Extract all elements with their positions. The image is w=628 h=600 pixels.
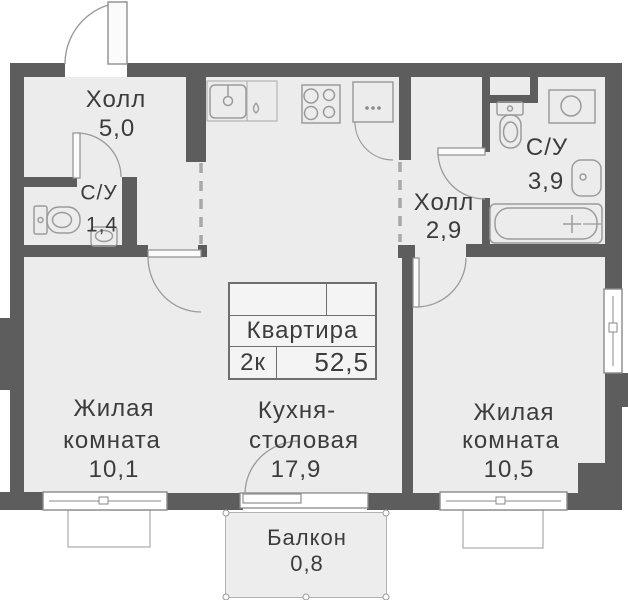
floor-plan: Квартира 2к 52,5 Холл 5,0 С/У 1,4 С/У 3,… bbox=[0, 0, 628, 600]
room-area-living-left: 10,1 bbox=[89, 458, 140, 482]
wall-left bbox=[10, 63, 24, 510]
wall-bottom-3 bbox=[367, 493, 440, 510]
room-area-living-right: 10,5 bbox=[484, 458, 535, 482]
wall-right-pilaster bbox=[605, 373, 628, 407]
wall-kitchen-right-lower bbox=[402, 245, 413, 493]
window-bottom-right bbox=[440, 492, 567, 510]
wall-wc-large-left-upper bbox=[482, 77, 490, 152]
room-area-kitchen: 17,9 bbox=[271, 458, 322, 482]
window-sill-left bbox=[68, 510, 150, 547]
room-label-kitchen-2: столовая bbox=[249, 429, 359, 453]
room-label-hall-top: Холл bbox=[86, 88, 147, 112]
room-label-living-right-2: комната bbox=[462, 429, 560, 453]
wall-wc-large-shaft-h bbox=[482, 95, 537, 103]
window-bottom-left bbox=[43, 492, 167, 510]
info-box-empty-row bbox=[230, 284, 375, 316]
room-area-balcony: 0,8 bbox=[290, 553, 324, 575]
room-label-living-left-2: комната bbox=[63, 429, 161, 453]
room-label-wc-large: С/У bbox=[526, 136, 568, 160]
apartment-info-box: Квартира 2к 52,5 bbox=[228, 282, 377, 380]
window-right-wall bbox=[604, 289, 622, 373]
entrance-door-leaf bbox=[108, 2, 127, 64]
wall-bottom-1 bbox=[10, 493, 43, 510]
room-label-kitchen-1: Кухня- bbox=[258, 399, 336, 423]
room-area-wc-small: 1,4 bbox=[86, 215, 118, 236]
room-label-wc-small: С/У bbox=[80, 183, 117, 204]
wall-wc-large-left-lower bbox=[482, 198, 490, 245]
room-area-hall-top: 5,0 bbox=[99, 117, 135, 141]
wall-wc-large-shaft-v bbox=[530, 77, 538, 103]
wall-hall-kitchen-divider bbox=[186, 77, 206, 162]
room-area-hall-right: 2,9 bbox=[426, 219, 462, 243]
info-box-values-row: 2к 52,5 bbox=[230, 347, 375, 378]
room-label-living-right-1: Жилая bbox=[474, 401, 555, 425]
room-label-living-left-1: Жилая bbox=[74, 397, 155, 421]
info-box-empty-cell-left bbox=[230, 284, 327, 315]
wall-hall-right-stub bbox=[398, 245, 415, 258]
room-label-hall-right: Холл bbox=[414, 191, 475, 215]
wall-wc-large-bottom bbox=[466, 244, 605, 257]
apartment-title: Квартира bbox=[230, 316, 375, 347]
info-box-title-row: Квартира bbox=[230, 316, 375, 348]
wall-hall-bottom bbox=[24, 245, 148, 257]
room-area-wc-large: 3,9 bbox=[528, 170, 564, 194]
window-sill-right bbox=[463, 510, 543, 548]
wall-wc-small-top bbox=[24, 177, 77, 187]
info-box-empty-cell-right bbox=[327, 284, 375, 315]
wall-bottom-2 bbox=[167, 493, 243, 510]
room-label-balcony: Балкон bbox=[267, 527, 347, 549]
wall-hall-bottom-stub bbox=[198, 245, 207, 257]
balcony-glazing bbox=[240, 493, 368, 508]
apartment-rooms-count: 2к bbox=[230, 347, 277, 378]
wall-top-main bbox=[127, 63, 605, 77]
wall-kitchen-right-upper bbox=[399, 77, 411, 160]
wall-right-upper bbox=[605, 63, 622, 290]
wall-bottom-4 bbox=[567, 493, 622, 510]
apartment-total-area: 52,5 bbox=[277, 347, 375, 378]
entrance-door bbox=[65, 2, 127, 64]
wall-left-pilaster bbox=[0, 318, 10, 390]
